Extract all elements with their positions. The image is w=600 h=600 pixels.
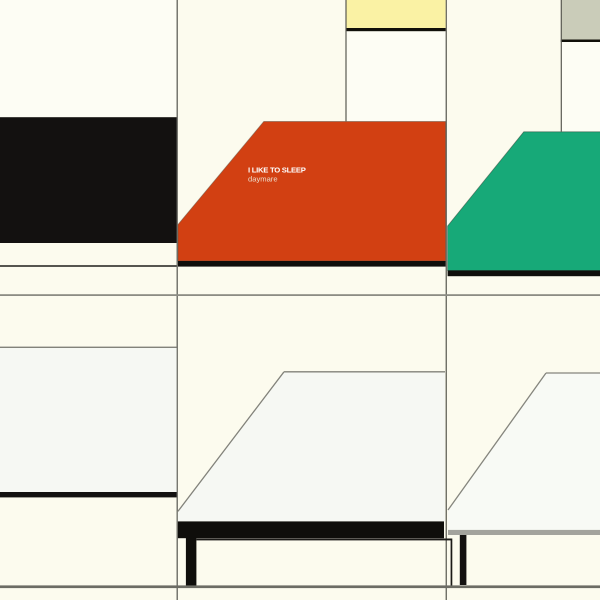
- svg-text:I LIKE TO SLEEP: I LIKE TO SLEEP: [248, 165, 306, 174]
- svg-text:daymare: daymare: [248, 175, 278, 184]
